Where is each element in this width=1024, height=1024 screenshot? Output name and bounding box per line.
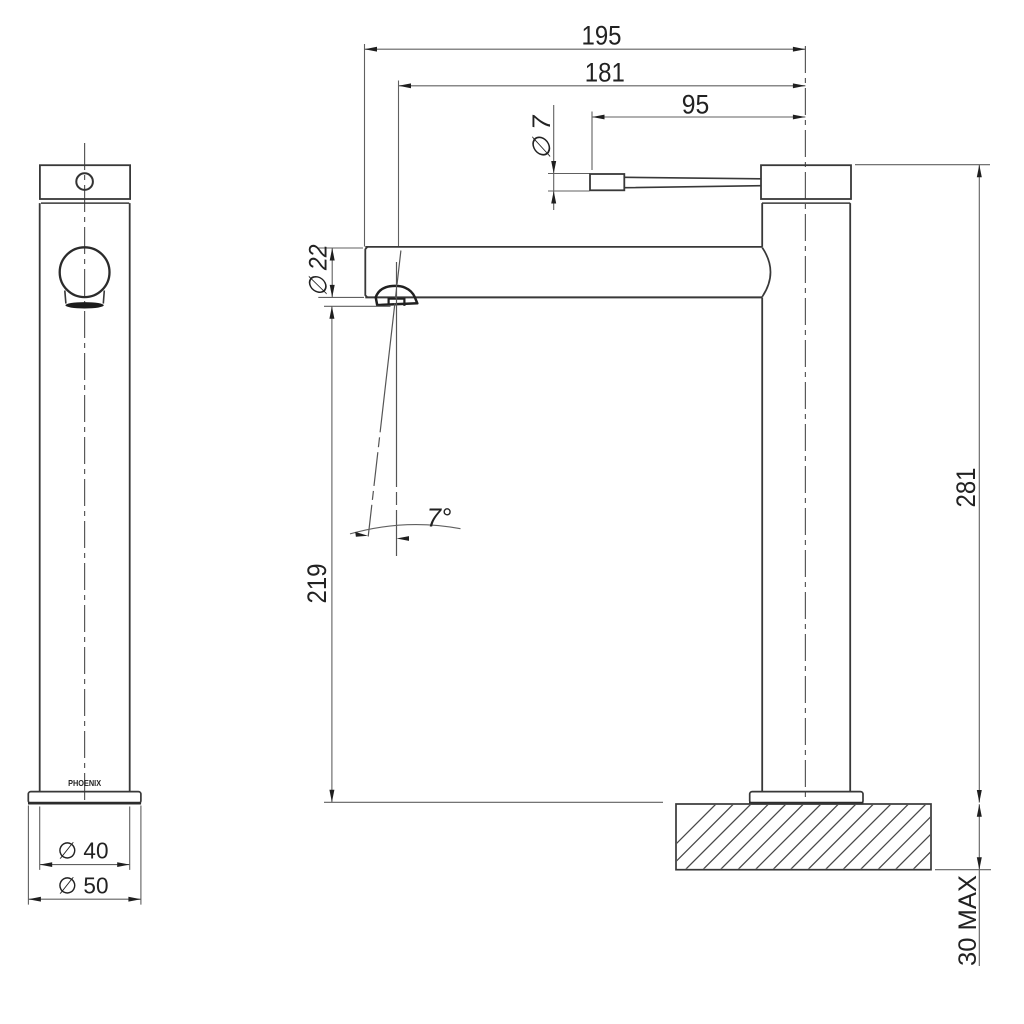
svg-text:∅ 7: ∅ 7 [528,114,556,159]
svg-text:281: 281 [951,468,981,508]
svg-text:30 MAX: 30 MAX [954,875,982,966]
svg-text:7°: 7° [427,503,452,533]
svg-text:PHOENIX: PHOENIX [68,778,101,788]
svg-text:95: 95 [682,89,710,119]
svg-text:181: 181 [585,58,625,88]
svg-text:∅ 40: ∅ 40 [58,837,109,863]
svg-text:195: 195 [582,21,622,51]
svg-text:∅ 50: ∅ 50 [58,873,109,899]
svg-text:219: 219 [302,564,332,604]
svg-text:∅ 22: ∅ 22 [305,244,333,296]
